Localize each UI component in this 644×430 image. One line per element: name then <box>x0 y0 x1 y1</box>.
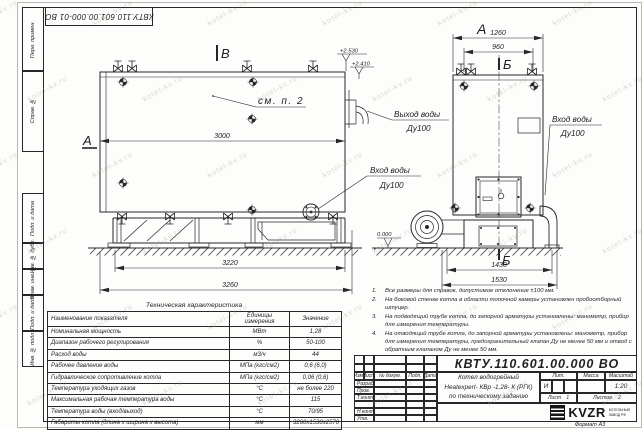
spec-table-block: Техническая характеристика Наименование … <box>47 302 341 430</box>
inlet-label-front: Вход воды <box>370 166 410 175</box>
spec-row: Гидравлическое сопротивление котлаМПа (к… <box>48 372 342 383</box>
row-checked: Пров. <box>354 387 374 394</box>
dim-1430: 1430 <box>491 262 507 269</box>
blower-fan <box>411 211 464 248</box>
spec-row: Температура уходящих газов°Сне более 220 <box>48 383 342 394</box>
margin-box-podp-data-2: Подп. и дата <box>22 294 44 332</box>
drawing-sheet: В А А Б Б см. п. 2 +2.530 +2.410 0.000 3… <box>0 0 644 430</box>
elevation-2410: +2.410 <box>352 62 371 68</box>
row-ncontrol: Н.контр. <box>354 408 374 415</box>
margin-box-sprav-no: Справ. № <box>22 70 44 152</box>
dim-3000: 3000 <box>214 133 230 140</box>
spec-row: Габариты котла (длина х ширина х высота)… <box>48 418 342 429</box>
spec-table: Наименование показателя Единицы измерени… <box>47 311 342 430</box>
format-label: Формат А3 <box>545 422 635 428</box>
spec-row: Максимальная рабочая температура воды°С1… <box>48 395 342 406</box>
elevation-2530: +2.530 <box>340 49 359 55</box>
row-developed: Разраб. <box>354 380 374 387</box>
col-list: Лист <box>364 372 374 380</box>
col-izm: Изм. <box>354 372 364 380</box>
row-approved: Утв. <box>354 415 374 422</box>
col-doc: № докум. <box>374 372 406 380</box>
kvzr-logo-subtext: КОТЕЛЬНЫЙ ЗАВОД РФ <box>609 408 630 417</box>
spec-row: Номинальная мощностьМВт1,28 <box>48 327 342 338</box>
spec-header-row: Наименование показателя Единицы измерени… <box>48 312 342 327</box>
dim-960: 960 <box>492 44 504 51</box>
see-note-ref: см. п. 2 <box>258 96 304 107</box>
sheet-cell: Лист 1 <box>540 393 577 403</box>
view-label-a: А <box>476 21 486 37</box>
spec-row: Температура воды (вход/выход)°С70/95 <box>48 406 342 417</box>
lit-header: Лит. <box>540 372 577 380</box>
note-item: 4. На отводящий трубе котла, до запорной… <box>372 331 636 355</box>
inlet-label-right: Вход воды <box>552 115 592 124</box>
col-sign: Подп. <box>406 372 424 380</box>
kvzr-logo-icon <box>550 405 565 420</box>
section-label-v: В <box>221 46 230 61</box>
scale-value: 1:20 <box>605 380 637 393</box>
side-view-fittings <box>450 64 540 214</box>
note-item: 1. Все размеры для справок, допустимое о… <box>372 288 636 296</box>
lit-value: И <box>540 380 552 393</box>
margin-box-podp-data-1: Подп. и дата <box>22 193 44 244</box>
title-block: Изм. Лист № докум. Подп. Дата Разраб. Пр… <box>354 355 637 422</box>
dim-1260: 1260 <box>490 30 506 37</box>
col-date: Дата <box>424 372 437 380</box>
mass-header: Масса <box>577 372 605 380</box>
spec-row: Рабочее давление водыМПа (кгс/см2)0,6 (6… <box>48 361 342 372</box>
front-view-fittings <box>114 61 338 224</box>
dim-3260: 3260 <box>222 282 238 289</box>
margin-box-inv-podl: Инв. № подл. <box>22 330 44 367</box>
margin-box-vzam-inv: Взам. инв. № <box>22 268 44 296</box>
row-tcontrol: Т.контр. <box>354 394 374 401</box>
spec-table-title: Техническая характеристика <box>47 302 341 309</box>
note-item: 3. На подводящий трубе котла, до запорно… <box>372 314 636 330</box>
front-view-art <box>88 72 368 256</box>
outlet-dn: Ду100 <box>406 124 431 133</box>
margin-box-perv-primen: Перв. примен. <box>22 7 44 72</box>
mass-value <box>577 380 605 393</box>
note-item: 2. На боковой стенке котла в области топ… <box>372 297 636 313</box>
organization-cell: KVZR КОТЕЛЬНЫЙ ЗАВОД РФ <box>437 403 637 422</box>
dim-3220: 3220 <box>222 260 238 267</box>
section-label-a: А <box>82 133 92 148</box>
product-name: Котел водогрейный Heatexpert- КВр -1,28-… <box>437 372 540 403</box>
top-stamp-box: КВТУ.110.601.00.000-01 ВО <box>45 7 153 26</box>
outlet-label: Выход воды <box>394 110 440 119</box>
top-stamp-number: КВТУ.110.601.00.000-01 ВО <box>45 12 154 21</box>
kvzr-logo-text: KVZR <box>568 405 605 420</box>
inlet-dn-front: Ду100 <box>379 181 404 190</box>
notes-block: 1. Все размеры для справок, допустимое о… <box>372 288 636 356</box>
burner-door <box>476 177 521 217</box>
inlet-dn-right: Ду100 <box>560 129 585 138</box>
spec-row: Диапазон рабочего регулирования%50-100 <box>48 338 342 349</box>
section-label-b-top: Б <box>503 57 512 72</box>
spec-row: Расход водым3/ч44 <box>48 349 342 360</box>
scale-header: Масштаб <box>605 372 637 380</box>
ash-door <box>464 220 533 248</box>
elevation-0000: 0.000 <box>377 232 392 238</box>
dim-1530: 1530 <box>491 277 507 284</box>
doc-number: КВТУ.110.601.00.000 ВО <box>437 355 637 372</box>
sheets-cell: Листов 2 <box>577 393 637 403</box>
